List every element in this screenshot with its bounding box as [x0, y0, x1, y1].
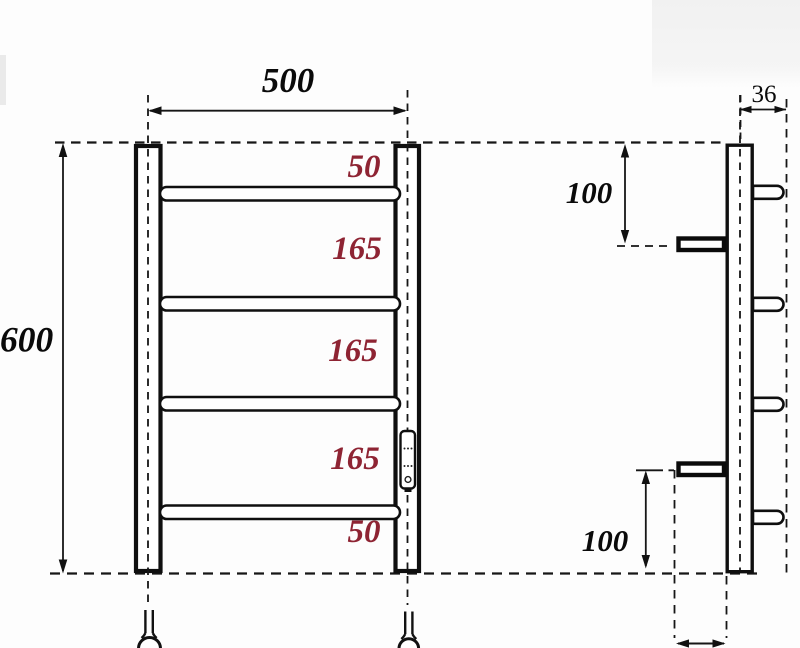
- svg-text:165: 165: [332, 231, 382, 267]
- svg-text:50: 50: [348, 514, 381, 550]
- svg-text:100: 100: [582, 523, 629, 558]
- svg-text:500: 500: [262, 61, 315, 100]
- svg-text:165: 165: [328, 333, 378, 369]
- svg-text:50: 50: [348, 149, 381, 185]
- svg-text:165: 165: [330, 441, 380, 477]
- svg-text:100: 100: [566, 175, 613, 210]
- svg-text:36: 36: [752, 81, 777, 108]
- svg-text:600: 600: [0, 320, 54, 360]
